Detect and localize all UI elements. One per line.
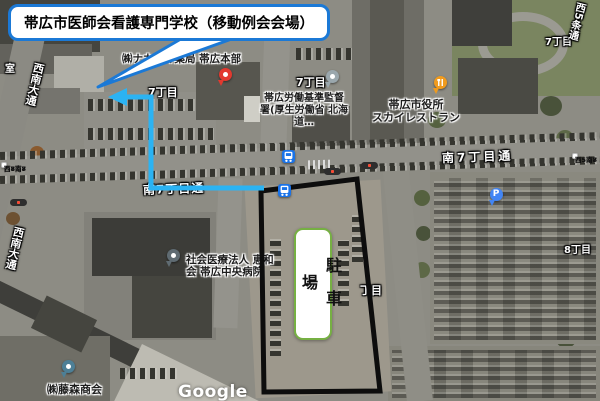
traffic-light-icon	[361, 162, 378, 169]
route-line	[126, 97, 264, 188]
pharmacy-pin-icon[interactable]	[218, 68, 232, 81]
intersection-sign-right: 西5南7 西5南8	[572, 153, 578, 159]
bus-stop-icon[interactable]	[282, 150, 295, 163]
parking-pin-icon[interactable]: P	[489, 188, 503, 201]
company-pin-icon[interactable]	[61, 360, 75, 373]
traffic-light-icon	[324, 168, 341, 175]
google-watermark[interactable]: Google	[178, 382, 248, 401]
gray-pin-icon[interactable]	[325, 70, 339, 83]
route-arrow-icon	[108, 88, 127, 106]
hospital-pin-icon[interactable]	[166, 249, 180, 262]
title-text: 帯広市医師会看護専門学校（移動例会会場）	[24, 12, 314, 33]
restaurant-pin-icon[interactable]	[433, 76, 447, 89]
parking-area-label: 駐車場	[294, 228, 332, 340]
traffic-light-icon	[10, 199, 27, 206]
intersection-sign-left: 西8南7 西8南8 西7南7	[1, 162, 7, 168]
bus-stop-icon[interactable]	[278, 184, 291, 197]
map-canvas: ㈱ナカジマ薬局 帯広本部 7丁目 7丁目 帯広労働基準監督 署(厚生労働省 北海…	[0, 0, 600, 401]
title-bubble: 帯広市医師会看護専門学校（移動例会会場）	[8, 4, 330, 41]
